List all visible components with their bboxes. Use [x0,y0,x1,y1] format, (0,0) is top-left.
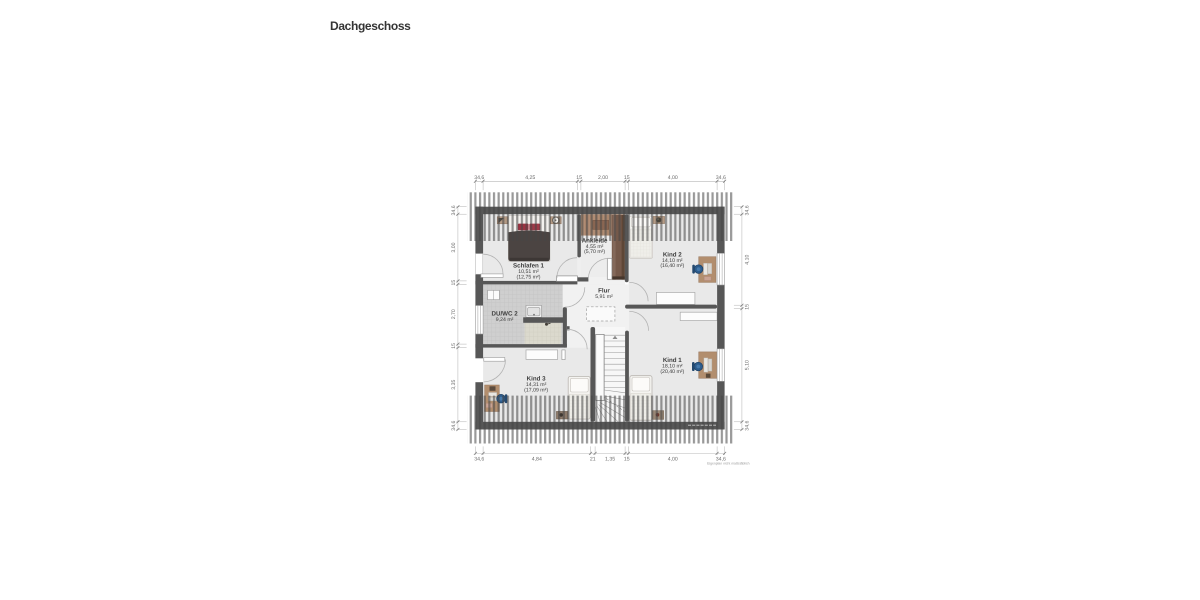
svg-text:3,00: 3,00 [451,242,457,252]
svg-text:4,25: 4,25 [525,175,535,181]
svg-text:34,6: 34,6 [744,205,750,215]
svg-text:5,91 m²: 5,91 m² [595,294,613,300]
svg-text:21: 21 [590,457,596,463]
svg-text:5,10: 5,10 [744,360,750,370]
svg-text:15: 15 [451,343,457,349]
svg-text:(16,40 m²): (16,40 m²) [660,263,684,269]
svg-text:(17,09 m²): (17,09 m²) [524,387,548,393]
svg-text:4,84: 4,84 [532,457,542,463]
svg-text:34,6: 34,6 [716,457,726,463]
svg-text:4,00: 4,00 [668,175,678,181]
svg-text:2,00: 2,00 [598,175,608,181]
svg-text:(5,70 m²): (5,70 m²) [584,249,605,255]
svg-text:34,6: 34,6 [716,175,726,181]
svg-text:15: 15 [744,304,750,310]
svg-text:3,35: 3,35 [451,380,457,390]
svg-text:15: 15 [451,280,457,286]
svg-text:4,00: 4,00 [668,457,678,463]
svg-text:34,6: 34,6 [474,457,484,463]
svg-text:34,6: 34,6 [451,420,457,430]
svg-text:9,24 m²: 9,24 m² [496,317,514,323]
svg-text:15: 15 [624,457,630,463]
svg-text:15: 15 [576,175,582,181]
svg-text:34,6: 34,6 [451,205,457,215]
svg-text:15: 15 [624,175,630,181]
svg-text:Eigenplan nicht maßstäblich: Eigenplan nicht maßstäblich [707,462,750,466]
svg-text:1,35: 1,35 [605,457,615,463]
svg-text:(12,75 m²): (12,75 m²) [517,274,541,280]
svg-text:2,70: 2,70 [451,309,457,319]
svg-text:(20,40 m²): (20,40 m²) [660,369,684,375]
svg-text:4,10: 4,10 [744,255,750,265]
svg-text:34,6: 34,6 [744,420,750,430]
svg-text:34,6: 34,6 [474,175,484,181]
